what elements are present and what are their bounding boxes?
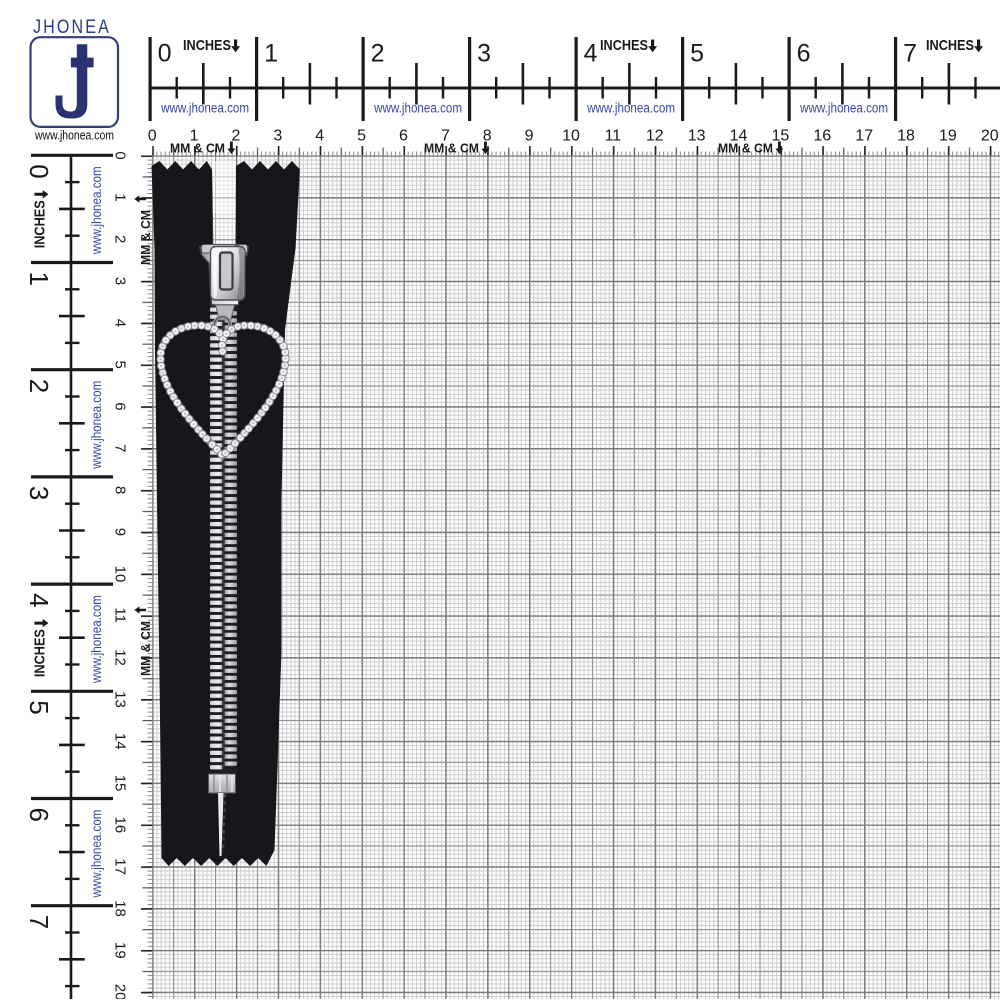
svg-text:14: 14	[112, 733, 129, 750]
svg-text:7: 7	[24, 915, 54, 929]
svg-text:16: 16	[112, 817, 129, 834]
svg-text:www.jhonea.com: www.jhonea.com	[34, 129, 114, 143]
svg-text:INCHES: INCHES	[32, 200, 49, 248]
svg-text:www.jhonea.com: www.jhonea.com	[89, 381, 104, 470]
svg-text:6: 6	[112, 402, 129, 410]
svg-text:0: 0	[24, 164, 54, 178]
svg-text:2: 2	[232, 128, 241, 145]
svg-text:20: 20	[112, 984, 129, 999]
svg-text:10: 10	[112, 566, 129, 583]
svg-text:INCHES: INCHES	[183, 37, 231, 54]
svg-text:16: 16	[813, 128, 831, 145]
svg-text:17: 17	[112, 858, 129, 875]
svg-text:17: 17	[855, 128, 873, 145]
svg-text:13: 13	[688, 128, 706, 145]
svg-text:2: 2	[371, 40, 385, 68]
svg-text:1: 1	[24, 272, 54, 286]
svg-text:www.jhonea.com: www.jhonea.com	[373, 101, 462, 116]
svg-text:19: 19	[112, 942, 129, 959]
svg-text:6: 6	[399, 128, 408, 145]
svg-text:MM & CM: MM & CM	[138, 210, 153, 265]
svg-text:www.jhonea.com: www.jhonea.com	[586, 101, 675, 116]
svg-text:9: 9	[525, 128, 534, 145]
svg-text:2: 2	[112, 235, 129, 243]
svg-text:6: 6	[797, 40, 811, 68]
svg-text:8: 8	[112, 486, 129, 494]
svg-text:0: 0	[112, 151, 129, 159]
svg-text:7: 7	[112, 444, 129, 452]
svg-text:INCHES: INCHES	[600, 37, 648, 54]
svg-text:MM & CM: MM & CM	[138, 621, 153, 676]
svg-text:1: 1	[264, 40, 278, 68]
svg-text:15: 15	[112, 775, 129, 792]
svg-text:20: 20	[981, 128, 999, 145]
svg-text:3: 3	[112, 277, 129, 285]
svg-text:11: 11	[605, 128, 622, 145]
svg-text:12: 12	[646, 128, 664, 145]
svg-text:www.jhonea.com: www.jhonea.com	[799, 101, 888, 116]
svg-text:10: 10	[562, 128, 580, 145]
svg-text:5: 5	[24, 700, 54, 714]
svg-text:INCHES: INCHES	[32, 629, 49, 677]
svg-text:INCHES: INCHES	[926, 37, 974, 54]
svg-text:6: 6	[24, 808, 54, 822]
svg-text:MM & CM: MM & CM	[718, 141, 773, 156]
svg-text:4: 4	[584, 40, 598, 68]
svg-text:1: 1	[112, 193, 129, 201]
svg-text:19: 19	[939, 128, 957, 145]
svg-text:9: 9	[112, 528, 129, 536]
svg-text:MM & CM: MM & CM	[170, 141, 225, 156]
svg-text:3: 3	[477, 40, 491, 68]
svg-text:2: 2	[24, 379, 54, 393]
svg-text:5: 5	[112, 361, 129, 369]
svg-text:18: 18	[897, 128, 915, 145]
svg-text:0: 0	[158, 40, 172, 68]
svg-text:4: 4	[112, 319, 129, 327]
svg-text:5: 5	[357, 128, 366, 145]
svg-text:4: 4	[24, 593, 54, 607]
svg-text:www.jhonea.com: www.jhonea.com	[160, 101, 249, 116]
svg-text:12: 12	[112, 649, 129, 666]
svg-text:www.jhonea.com: www.jhonea.com	[89, 166, 104, 255]
svg-text:13: 13	[112, 691, 129, 708]
svg-text:MM & CM: MM & CM	[424, 141, 479, 156]
svg-text:18: 18	[112, 900, 129, 917]
svg-text:4: 4	[315, 128, 324, 145]
svg-text:3: 3	[273, 128, 282, 145]
svg-text:5: 5	[690, 40, 704, 68]
svg-text:3: 3	[24, 486, 54, 500]
svg-text:www.jhonea.com: www.jhonea.com	[89, 595, 104, 684]
svg-text:11: 11	[112, 607, 129, 623]
svg-text:0: 0	[148, 128, 157, 145]
svg-text:7: 7	[903, 40, 917, 68]
svg-text:JHONEA: JHONEA	[33, 16, 111, 38]
svg-text:www.jhonea.com: www.jhonea.com	[89, 810, 104, 899]
